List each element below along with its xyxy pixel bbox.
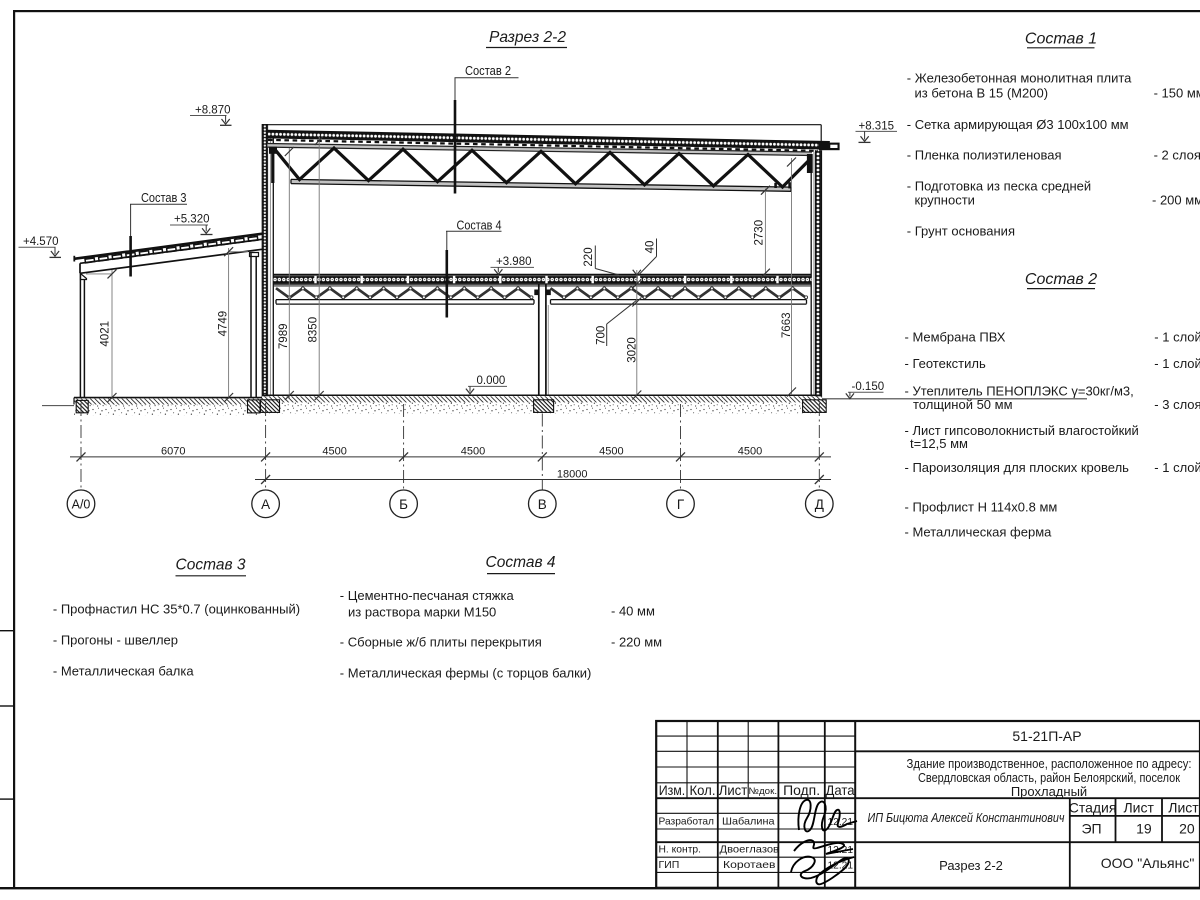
svg-text:- 1 слой: - 1 слой xyxy=(1154,356,1200,371)
svg-text:+8.315: +8.315 xyxy=(859,120,895,132)
svg-text:- Железобетонная монолитная п: - Железобетонная монолитная плита xyxy=(907,71,1132,86)
svg-text:- 1 слой: - 1 слой xyxy=(1154,330,1200,345)
svg-text:- Металлическая балка: - Металлическая балка xyxy=(53,664,194,679)
svg-text:0.000: 0.000 xyxy=(477,375,506,387)
svg-text:+8.870: +8.870 xyxy=(195,105,231,117)
svg-text:толщиной 50 мм: толщиной 50 мм xyxy=(913,397,1013,412)
svg-text:2730: 2730 xyxy=(754,220,766,246)
svg-text:19: 19 xyxy=(1136,821,1152,837)
svg-text:Состав 3: Состав 3 xyxy=(141,190,187,205)
svg-text:Коротаев: Коротаев xyxy=(723,859,776,871)
svg-text:- Профлист Н 114х0.8 мм: - Профлист Н 114х0.8 мм xyxy=(905,500,1058,515)
svg-text:4500: 4500 xyxy=(461,446,485,458)
svg-text:- Пленка полиэтиленовая: - Пленка полиэтиленовая xyxy=(907,148,1062,163)
svg-text:4500: 4500 xyxy=(599,446,623,458)
svg-text:20: 20 xyxy=(1179,821,1195,837)
svg-text:4500: 4500 xyxy=(322,446,346,458)
svg-text:Состав 4: Состав 4 xyxy=(457,217,502,232)
svg-text:Свердловская область, район Бе: Свердловская область, район Белоярский, … xyxy=(918,770,1180,785)
svg-text:- 150 мм: - 150 мм xyxy=(1154,85,1200,100)
svg-text:- 3 слоя: - 3 слоя xyxy=(1154,397,1200,412)
svg-text:700: 700 xyxy=(596,326,608,345)
svg-text:Лист: Лист xyxy=(1123,800,1154,816)
svg-text:Состав 2: Состав 2 xyxy=(1025,271,1097,288)
svg-text:Разрез 2-2: Разрез 2-2 xyxy=(489,29,566,46)
svg-text:Н. контр.: Н. контр. xyxy=(659,844,702,856)
svg-text:Состав 2: Состав 2 xyxy=(465,63,511,78)
svg-text:18000: 18000 xyxy=(557,468,588,480)
svg-text:Листов: Листов xyxy=(1168,800,1200,816)
svg-text:Прохладный: Прохладный xyxy=(1011,784,1087,799)
svg-text:Изм.: Изм. xyxy=(659,782,686,798)
svg-text:Лист: Лист xyxy=(719,782,748,798)
svg-text:- Металлическая фермы (с торцо: - Металлическая фермы (с торцов балки) xyxy=(340,665,592,680)
svg-text:Кол.: Кол. xyxy=(690,782,716,798)
svg-text:51-21П-АР: 51-21П-АР xyxy=(1012,728,1081,744)
svg-text:Г: Г xyxy=(677,497,685,512)
svg-text:Состав 3: Состав 3 xyxy=(176,557,246,574)
svg-text:В: В xyxy=(538,497,547,512)
svg-text:ГИП: ГИП xyxy=(659,859,680,871)
svg-text:ООО "Альянс": ООО "Альянс" xyxy=(1101,855,1195,871)
svg-text:ИП Бицюта Алексей Константинов: ИП Бицюта Алексей Константинович xyxy=(868,810,1065,825)
svg-text:8350: 8350 xyxy=(308,317,320,343)
svg-text:- 200 мм: - 200 мм xyxy=(1152,193,1200,208)
svg-text:40: 40 xyxy=(645,241,657,254)
svg-text:-0.150: -0.150 xyxy=(852,381,885,393)
svg-text:- Пароизоляция для плоских кро: - Пароизоляция для плоских кровель xyxy=(905,460,1130,475)
svg-text:- 1 слой: - 1 слой xyxy=(1154,460,1200,475)
svg-text:- Металлическая ферма: - Металлическая ферма xyxy=(905,525,1053,540)
svg-text:- Прогоны - швеллер: - Прогоны - швеллер xyxy=(53,633,178,648)
svg-text:7989: 7989 xyxy=(278,324,290,350)
svg-text:3020: 3020 xyxy=(627,337,639,363)
svg-text:- Подготовка из песка средней: - Подготовка из песка средней xyxy=(907,179,1091,194)
svg-text:Здание производственное, распо: Здание производственное, расположенное п… xyxy=(907,756,1192,771)
svg-text:- 220 мм: - 220 мм xyxy=(611,634,662,649)
svg-text:Состав 1: Состав 1 xyxy=(1025,31,1097,48)
svg-text:Подп.: Подп. xyxy=(783,782,820,798)
svg-text:крупности: крупности xyxy=(915,193,975,208)
svg-text:- Сборные ж/б плиты перекрытия: - Сборные ж/б плиты перекрытия xyxy=(340,634,542,649)
svg-text:+4.570: +4.570 xyxy=(23,236,59,248)
svg-text:Двоеглазов: Двоеглазов xyxy=(720,844,780,856)
svg-text:4500: 4500 xyxy=(738,446,762,458)
svg-text:- Геотекстиль: - Геотекстиль xyxy=(905,356,986,371)
svg-text:Состав 4: Состав 4 xyxy=(486,554,556,571)
svg-text:- 2 слоя: - 2 слоя xyxy=(1154,148,1200,163)
svg-text:Б: Б xyxy=(399,497,408,512)
svg-text:Разрез 2-2: Разрез 2-2 xyxy=(939,858,1003,873)
svg-text:+3.980: +3.980 xyxy=(496,256,532,268)
svg-text:7663: 7663 xyxy=(781,313,793,339)
svg-text:t=12,5 мм: t=12,5 мм xyxy=(910,436,968,451)
svg-text:ЭП: ЭП xyxy=(1081,821,1101,837)
svg-text:- Сетка армирующая Ø3 100х100: - Сетка армирующая Ø3 100х100 мм xyxy=(907,117,1129,132)
svg-text:Шабалина: Шабалина xyxy=(722,816,775,828)
svg-text:+5.320: +5.320 xyxy=(174,214,210,226)
svg-text:- Цементно-песчаная стяжка: - Цементно-песчаная стяжка xyxy=(340,588,515,603)
svg-text:из бетона В 15 (М200): из бетона В 15 (М200) xyxy=(915,85,1049,100)
svg-text:6070: 6070 xyxy=(161,446,185,458)
svg-text:- Грунт основания: - Грунт основания xyxy=(907,224,1015,239)
svg-text:Разработал: Разработал xyxy=(659,816,715,828)
svg-text:Стадия: Стадия xyxy=(1069,800,1117,816)
svg-text:из раствора марки М150: из раствора марки М150 xyxy=(348,604,496,619)
svg-text:А/0: А/0 xyxy=(72,498,91,512)
svg-text:4021: 4021 xyxy=(100,321,112,347)
svg-text:Дата: Дата xyxy=(826,782,855,798)
svg-text:- Мембрана ПВХ: - Мембрана ПВХ xyxy=(905,330,1006,345)
svg-text:- 40 мм: - 40 мм xyxy=(611,604,655,619)
svg-text:4749: 4749 xyxy=(218,311,230,337)
svg-text:- Профнастил НС 35*0.7 (оцинко: - Профнастил НС 35*0.7 (оцинкованный) xyxy=(53,602,300,617)
svg-text:220: 220 xyxy=(583,247,595,266)
svg-text:А: А xyxy=(261,497,270,512)
svg-text:Д: Д xyxy=(815,497,824,512)
svg-text:№док.: №док. xyxy=(749,786,778,797)
